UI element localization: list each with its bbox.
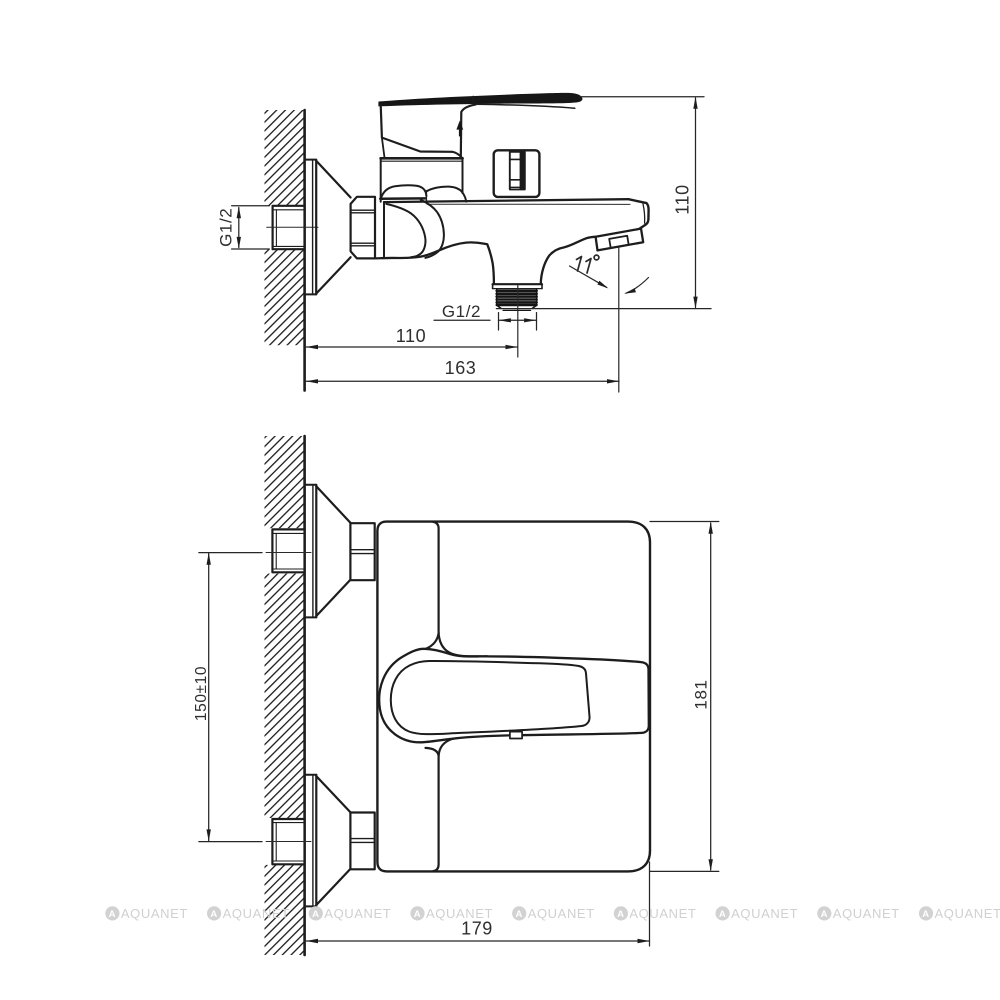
svg-text:A: A	[312, 909, 319, 920]
svg-text:AQUANET: AQUANET	[935, 906, 1000, 921]
svg-text:179: 179	[461, 919, 493, 939]
svg-text:181: 181	[692, 679, 711, 709]
svg-text:A: A	[719, 909, 726, 920]
svg-text:AQUANET: AQUANET	[324, 906, 391, 921]
svg-text:110: 110	[396, 326, 427, 346]
svg-text:163: 163	[445, 358, 477, 378]
svg-text:AQUANET: AQUANET	[833, 906, 900, 921]
svg-text:AQUANET: AQUANET	[629, 906, 696, 921]
svg-text:G1/2: G1/2	[442, 302, 481, 321]
svg-text:AQUANET: AQUANET	[223, 906, 290, 921]
svg-text:AQUANET: AQUANET	[426, 906, 493, 921]
svg-text:150±10: 150±10	[193, 666, 210, 721]
svg-text:G1/2: G1/2	[217, 208, 236, 247]
svg-text:AQUANET: AQUANET	[528, 906, 595, 921]
svg-text:A: A	[210, 909, 217, 920]
svg-text:AQUANET: AQUANET	[731, 906, 798, 921]
svg-text:AQUANET: AQUANET	[121, 906, 188, 921]
svg-text:A: A	[109, 909, 116, 920]
svg-text:A: A	[922, 909, 929, 920]
svg-text:A: A	[617, 909, 624, 920]
svg-text:A: A	[821, 909, 828, 920]
svg-text:A: A	[515, 909, 522, 920]
svg-text:A: A	[414, 909, 421, 920]
svg-text:110: 110	[673, 184, 693, 215]
